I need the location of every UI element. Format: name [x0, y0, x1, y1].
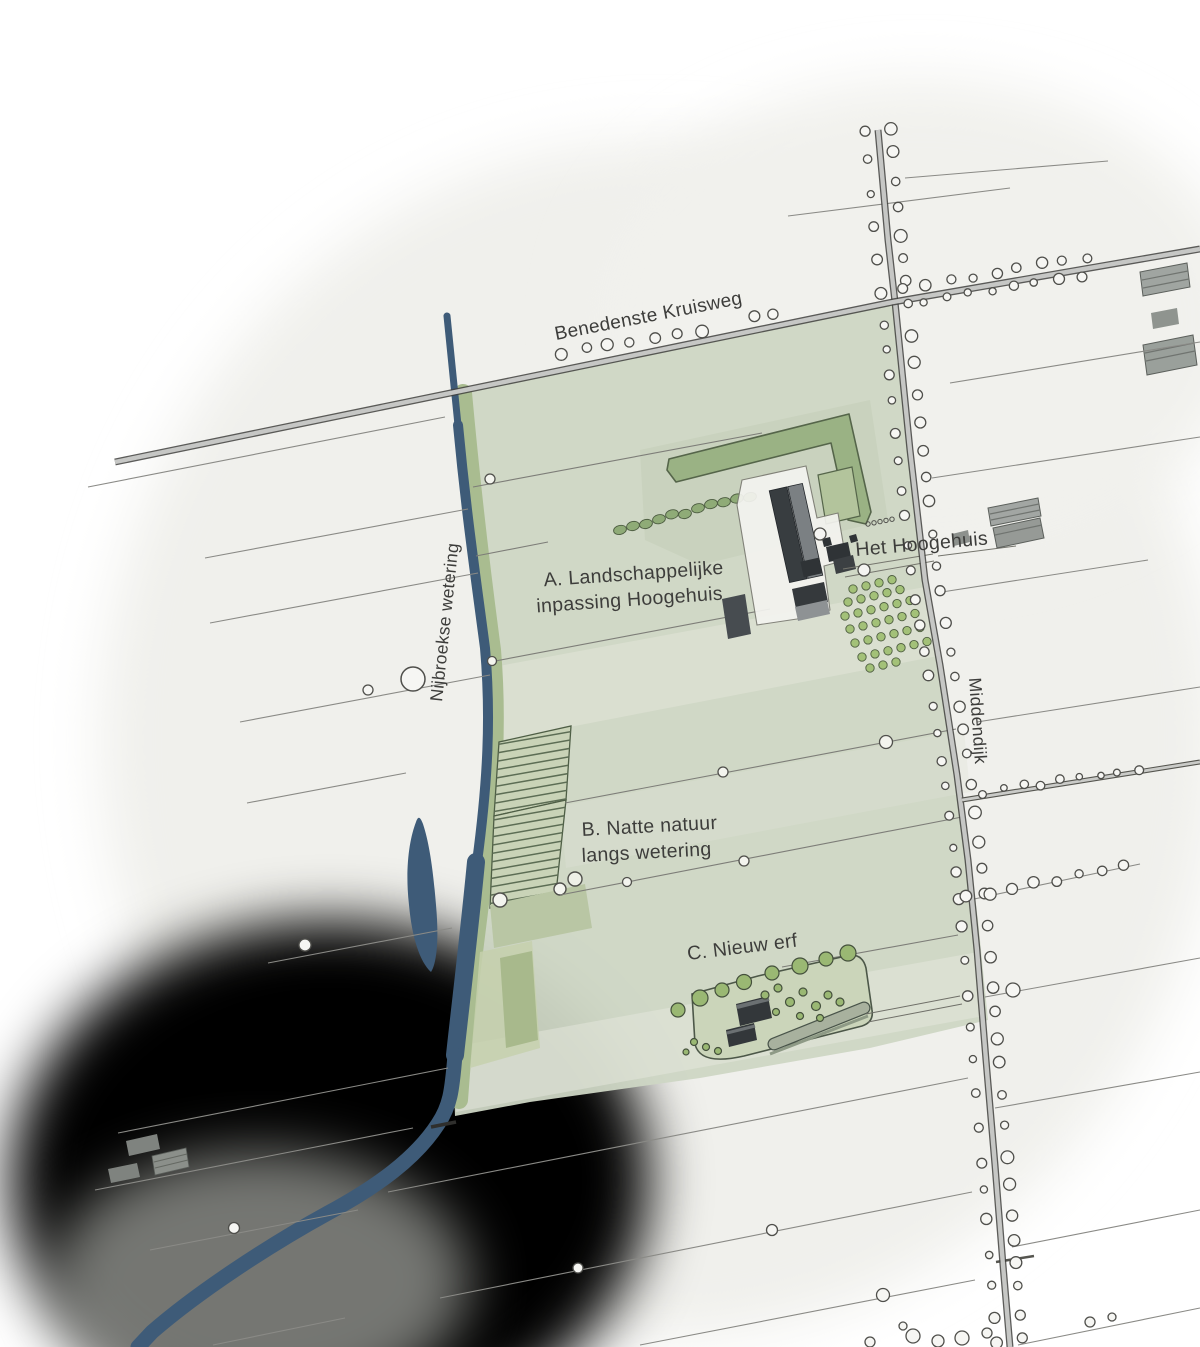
roadside-tree-icon	[972, 1089, 981, 1098]
roadside-tree-icon	[958, 724, 969, 735]
orchard-tree-icon	[897, 644, 905, 652]
erf-tree-icon	[824, 991, 832, 999]
erf-tree-icon	[761, 991, 769, 999]
roadside-tree-icon	[966, 779, 976, 789]
roadside-tree-icon	[989, 288, 996, 295]
roadside-tree-icon	[943, 293, 951, 301]
roadside-tree-icon	[888, 397, 895, 404]
roadside-tree-icon	[1030, 279, 1037, 286]
tree-chain-icon	[1028, 877, 1039, 888]
roadside-tree-icon	[920, 299, 927, 306]
erf-tree-icon	[737, 975, 752, 990]
erf-tree-icon	[819, 952, 833, 966]
roadside-tree-icon	[892, 177, 900, 185]
tree-chain-icon	[1075, 870, 1083, 878]
roadside-tree-icon	[863, 155, 871, 163]
tree-chain-icon	[1007, 883, 1018, 894]
orchard-tree-icon	[846, 625, 854, 633]
roadside-tree-icon	[1098, 772, 1104, 778]
tree-icon	[401, 667, 425, 691]
roadside-tree-icon	[897, 487, 906, 496]
tree-chain-icon	[1118, 860, 1128, 870]
yard-tree-icon	[814, 528, 826, 540]
orchard-tree-icon	[849, 585, 857, 593]
roadside-tree-icon	[1114, 769, 1121, 776]
orchard-tree-icon	[879, 661, 887, 669]
roadside-tree-icon	[969, 1056, 976, 1063]
tree-icon	[488, 657, 497, 666]
orchard-tree-icon	[877, 633, 885, 641]
orchard-tree-icon	[910, 640, 918, 648]
roadside-tree-icon	[1009, 281, 1018, 290]
tree-icon	[718, 767, 728, 777]
roadside-tree-icon	[961, 956, 969, 964]
roadside-tree-icon	[929, 702, 937, 710]
roadside-tree-icon	[969, 806, 982, 819]
roadside-tree-icon	[885, 123, 897, 135]
orchard-tree-icon	[864, 636, 872, 644]
roadside-tree-icon	[987, 982, 998, 993]
roadside-tree-icon	[974, 1123, 983, 1132]
tree-icon	[955, 1331, 969, 1345]
site-plan-map: Benedenste Kruisweg Nijbroekse wetering …	[0, 0, 1200, 1347]
tree-icon	[623, 878, 632, 887]
orchard-tree-icon	[880, 603, 888, 611]
erf-tree-icon	[774, 984, 782, 992]
orchard-tree-icon	[888, 576, 896, 584]
orchard-tree-icon	[862, 582, 870, 590]
roadside-tree-icon	[910, 595, 920, 605]
roadside-tree-icon	[991, 1033, 1003, 1045]
roadside-tree-icon	[935, 586, 945, 596]
roadside-tree-icon	[1083, 254, 1092, 263]
orchard-tree-icon	[866, 664, 874, 672]
roadside-tree-icon	[956, 921, 967, 932]
roadside-tree-icon	[918, 446, 929, 457]
bank-band-dark	[500, 951, 538, 1048]
roadside-tree-icon	[555, 349, 567, 361]
tree-icon	[767, 1225, 778, 1236]
roadside-tree-icon	[934, 730, 941, 737]
roadside-tree-icon	[990, 1006, 1000, 1016]
roadside-tree-icon	[982, 920, 992, 930]
roadside-tree-icon	[1008, 1235, 1020, 1247]
tree-icon	[568, 872, 582, 886]
roadside-tree-icon	[1057, 256, 1066, 265]
erf-tree-icon	[683, 1049, 689, 1055]
erf-tree-icon	[692, 990, 708, 1006]
tree-icon	[982, 1328, 992, 1338]
roadside-tree-icon	[904, 299, 912, 307]
roadside-tree-icon	[908, 356, 920, 368]
tree-chain-icon	[984, 888, 996, 900]
orchard-tree-icon	[857, 595, 865, 603]
tree-chain-icon	[960, 890, 972, 902]
orchard-tree-icon	[854, 609, 862, 617]
orchard-tree-icon	[851, 639, 859, 647]
roadside-tree-icon	[1015, 1310, 1025, 1320]
tree-icon	[229, 1223, 240, 1234]
tree-icon	[1085, 1317, 1095, 1327]
roadside-tree-icon	[887, 146, 899, 158]
roadside-tree-icon	[920, 280, 931, 291]
erf-tree-icon	[817, 1015, 824, 1022]
erf-tree-icon	[812, 1002, 821, 1011]
roadside-tree-icon	[1135, 766, 1144, 775]
roadside-tree-icon	[977, 863, 987, 873]
roadside-tree-icon	[749, 311, 760, 322]
roadside-tree-icon	[869, 222, 879, 232]
roadside-tree-icon	[991, 1337, 1003, 1347]
erf-tree-icon	[671, 1003, 685, 1017]
roadside-tree-icon	[872, 254, 883, 265]
tree-icon	[877, 1289, 890, 1302]
tree-icon	[1006, 983, 1020, 997]
roadside-tree-icon	[915, 620, 925, 630]
tree-icon	[493, 893, 507, 907]
tree-icon	[880, 736, 893, 749]
roadside-tree-icon	[937, 757, 946, 766]
roadside-tree-icon	[905, 330, 917, 342]
roadside-tree-icon	[992, 268, 1002, 278]
roadside-tree-icon	[915, 417, 926, 428]
orchard-tree-icon	[872, 619, 880, 627]
erf-tree-icon	[773, 1009, 780, 1016]
roadside-tree-icon	[768, 309, 778, 319]
roadside-tree-icon	[989, 1312, 1000, 1323]
roadside-tree-icon	[981, 1213, 992, 1224]
roadside-tree-icon	[1054, 273, 1065, 284]
tree-icon	[932, 1335, 944, 1347]
orchard-tree-icon	[859, 622, 867, 630]
roadside-tree-icon	[906, 566, 915, 575]
roadside-tree-icon	[890, 429, 900, 439]
roadside-tree-icon	[875, 288, 887, 300]
roadside-tree-icon	[964, 289, 971, 296]
roadside-tree-icon	[672, 329, 682, 339]
roadside-tree-icon	[980, 1186, 987, 1193]
roadside-tree-icon	[894, 457, 902, 465]
roadside-tree-icon	[923, 670, 934, 681]
roadside-tree-icon	[985, 952, 996, 963]
erf-tree-icon	[715, 983, 729, 997]
yard-tree-icon	[858, 564, 870, 576]
roadside-tree-icon	[1014, 1281, 1022, 1289]
roadside-tree-icon	[1001, 1151, 1014, 1164]
orchard-tree-icon	[911, 609, 919, 617]
roadside-tree-icon	[947, 275, 956, 284]
roadside-tree-icon	[950, 844, 957, 851]
orchard-tree-icon	[883, 589, 891, 597]
roadside-tree-icon	[1037, 257, 1048, 268]
roadside-tree-icon	[1004, 1178, 1016, 1190]
roadside-tree-icon	[920, 647, 929, 656]
orchard-tree-icon	[875, 579, 883, 587]
roadside-tree-icon	[1001, 1121, 1009, 1129]
roadside-tree-icon	[1076, 774, 1082, 780]
roadside-tree-icon	[973, 836, 985, 848]
roadside-tree-icon	[884, 370, 894, 380]
roadside-tree-icon	[993, 1056, 1005, 1068]
orchard-tree-icon	[898, 612, 906, 620]
parcel-line	[1012, 1210, 1200, 1247]
roadside-tree-icon	[650, 333, 661, 344]
roadside-tree-icon	[898, 284, 908, 294]
tree-chain-icon	[1098, 866, 1107, 875]
tree-icon	[554, 883, 566, 895]
roadside-tree-icon	[922, 472, 931, 481]
orchard-tree-icon	[892, 658, 900, 666]
roadside-tree-icon	[1036, 781, 1045, 790]
roadside-tree-icon	[893, 202, 902, 211]
orchard-tree-icon	[871, 650, 879, 658]
orchard-tree-icon	[884, 647, 892, 655]
roadside-tree-icon	[951, 672, 959, 680]
orchard-tree-icon	[890, 630, 898, 638]
roadside-tree-icon	[966, 1023, 974, 1031]
roadside-tree-icon	[1010, 1257, 1022, 1269]
orchard-tree-icon	[923, 637, 931, 645]
orchard-tree-icon	[844, 598, 852, 606]
roadside-tree-icon	[900, 510, 910, 520]
tree-chain-icon	[1052, 877, 1062, 887]
roadside-tree-icon	[883, 346, 890, 353]
erf-tree-icon	[691, 1039, 698, 1046]
roadside-tree-icon	[1020, 780, 1028, 788]
erf-tree-icon	[797, 1013, 804, 1020]
roadside-tree-icon	[932, 562, 940, 570]
roadside-tree-icon	[913, 390, 923, 400]
roadside-tree-icon	[867, 191, 874, 198]
roadside-tree-icon	[1056, 775, 1065, 784]
roadside-tree-icon	[942, 782, 949, 789]
tree-icon	[573, 1263, 583, 1273]
orchard-tree-icon	[903, 626, 911, 634]
roadside-tree-icon	[1001, 785, 1008, 792]
roadside-tree-icon	[963, 749, 972, 758]
roadside-tree-icon	[969, 274, 977, 282]
orchard-tree-icon	[893, 599, 901, 607]
erf-tree-icon	[786, 998, 795, 1007]
erf-tree-icon	[799, 988, 807, 996]
tree-icon	[906, 1329, 920, 1343]
roadside-tree-icon	[894, 230, 907, 243]
roadside-tree-icon	[977, 1158, 987, 1168]
roadside-tree-icon	[988, 1281, 996, 1289]
tree-icon	[363, 685, 373, 695]
roadside-tree-icon	[880, 321, 888, 329]
roadside-tree-icon	[899, 254, 908, 263]
orchard-tree-icon	[885, 616, 893, 624]
roadside-tree-icon	[696, 325, 709, 338]
garden-plot	[818, 467, 860, 524]
orchard-tree-icon	[896, 585, 904, 593]
roadside-tree-icon	[963, 991, 973, 1001]
tree-icon	[485, 474, 495, 484]
tree-icon	[739, 856, 749, 866]
roadside-tree-icon	[945, 811, 954, 820]
roadside-tree-icon	[625, 338, 634, 347]
orchard-tree-icon	[867, 606, 875, 614]
tree-icon	[299, 939, 311, 951]
roadside-tree-icon	[986, 1251, 993, 1258]
roadside-tree-icon	[947, 648, 955, 656]
erf-tree-icon	[836, 998, 844, 1006]
orchard-tree-icon	[870, 592, 878, 600]
roadside-tree-icon	[998, 1091, 1007, 1100]
erf-tree-icon	[703, 1044, 710, 1051]
roadside-tree-icon	[954, 701, 965, 712]
orchard-tree-icon	[858, 653, 866, 661]
erf-tree-icon	[792, 958, 808, 974]
roadside-tree-icon	[940, 617, 951, 628]
tree-icon	[865, 1337, 875, 1347]
erf-tree-icon	[765, 966, 779, 980]
roadside-tree-icon	[979, 791, 987, 799]
roadside-tree-icon	[601, 339, 613, 351]
roadside-tree-icon	[1012, 263, 1021, 272]
roadside-tree-icon	[1077, 272, 1087, 282]
tree-icon	[1108, 1313, 1116, 1321]
roadside-tree-icon	[1007, 1210, 1018, 1221]
roadside-tree-icon	[860, 126, 870, 136]
tree-icon	[899, 1322, 907, 1330]
roadside-tree-icon	[1017, 1333, 1027, 1343]
roadside-tree-icon	[951, 867, 961, 877]
erf-tree-icon	[840, 945, 856, 961]
roadside-tree-icon	[582, 343, 591, 352]
roadside-tree-icon	[923, 495, 934, 506]
erf-tree-icon	[715, 1048, 722, 1055]
orchard-tree-icon	[841, 612, 849, 620]
